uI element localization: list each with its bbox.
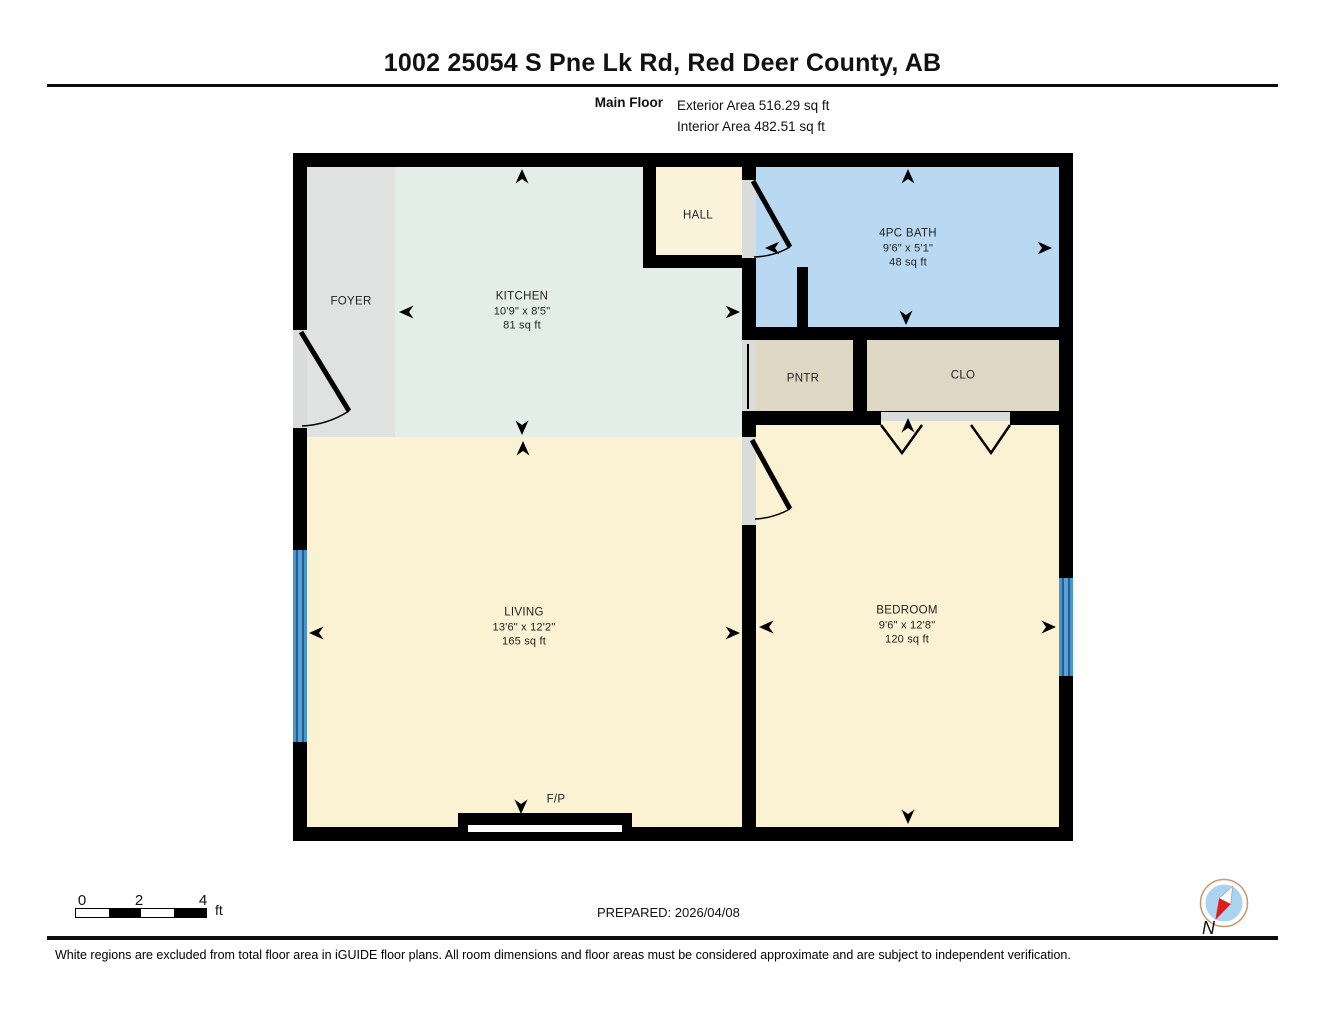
wall-segment (742, 411, 881, 425)
wall-segment (643, 167, 656, 268)
bedroom-door-opening (742, 437, 756, 525)
closet-opening (881, 411, 1010, 421)
floor-plan-page: 1002 25054 S Pne Lk Rd, Red Deer County,… (0, 0, 1325, 1024)
floor-plan: FOYER KITCHEN 10'9" x 8'5" 81 sq ft HALL… (293, 153, 1073, 841)
room-label-foyer: FOYER (330, 295, 371, 310)
wall-segment (293, 742, 307, 841)
foyer-door-opening (293, 330, 307, 428)
scale-bar-segments (75, 908, 207, 918)
wall-segment (293, 428, 307, 550)
page-title: 1002 25054 S Pne Lk Rd, Red Deer County,… (0, 49, 1325, 78)
footer-divider (47, 936, 1278, 940)
room-label-bath: 4PC BATH 9'6" x 5'1" 48 sq ft (879, 227, 937, 270)
room-label-pantry: PNTR (787, 372, 820, 387)
wall-segment (797, 267, 808, 327)
wall-segment (293, 153, 1073, 167)
wall-segment (742, 167, 756, 180)
room-label-kitchen: KITCHEN 10'9" x 8'5" 81 sq ft (494, 290, 551, 333)
disclaimer-text: White regions are excluded from total fl… (55, 948, 1071, 962)
room-label-hall: HALL (683, 209, 713, 224)
wall-segment (742, 327, 1059, 340)
room-label-bedroom: BEDROOM 9'6" x 12'8" 120 sq ft (876, 604, 938, 647)
wall-segment (1010, 411, 1059, 425)
wall-segment (742, 525, 756, 841)
scale-unit: ft (215, 902, 223, 918)
room-label-closet: CLO (951, 369, 976, 384)
room-label-fireplace: F/P (547, 793, 566, 808)
wall-segment (643, 255, 742, 268)
prepared-date: PREPARED: 2026/04/08 (597, 905, 740, 920)
wall-segment (293, 827, 1073, 841)
exterior-area: Exterior Area 516.29 sq ft (677, 95, 829, 116)
living-window (293, 550, 307, 742)
area-summary: Exterior Area 516.29 sq ft Interior Area… (677, 95, 829, 137)
bedroom-window (1059, 578, 1073, 676)
interior-area: Interior Area 482.51 sq ft (677, 116, 829, 137)
fireplace-slot (468, 825, 622, 832)
floor-label: Main Floor (0, 95, 663, 110)
bath-door-opening (742, 180, 756, 258)
scale-bar: 0 2 4 ft (75, 892, 245, 918)
wall-segment (1059, 153, 1073, 578)
wall-segment (1059, 676, 1073, 841)
pantry-door-opening (742, 340, 756, 411)
wall-segment (293, 153, 307, 330)
room-label-living: LIVING 13'6" x 12'2" 165 sq ft (493, 606, 556, 649)
header-divider (47, 84, 1278, 87)
